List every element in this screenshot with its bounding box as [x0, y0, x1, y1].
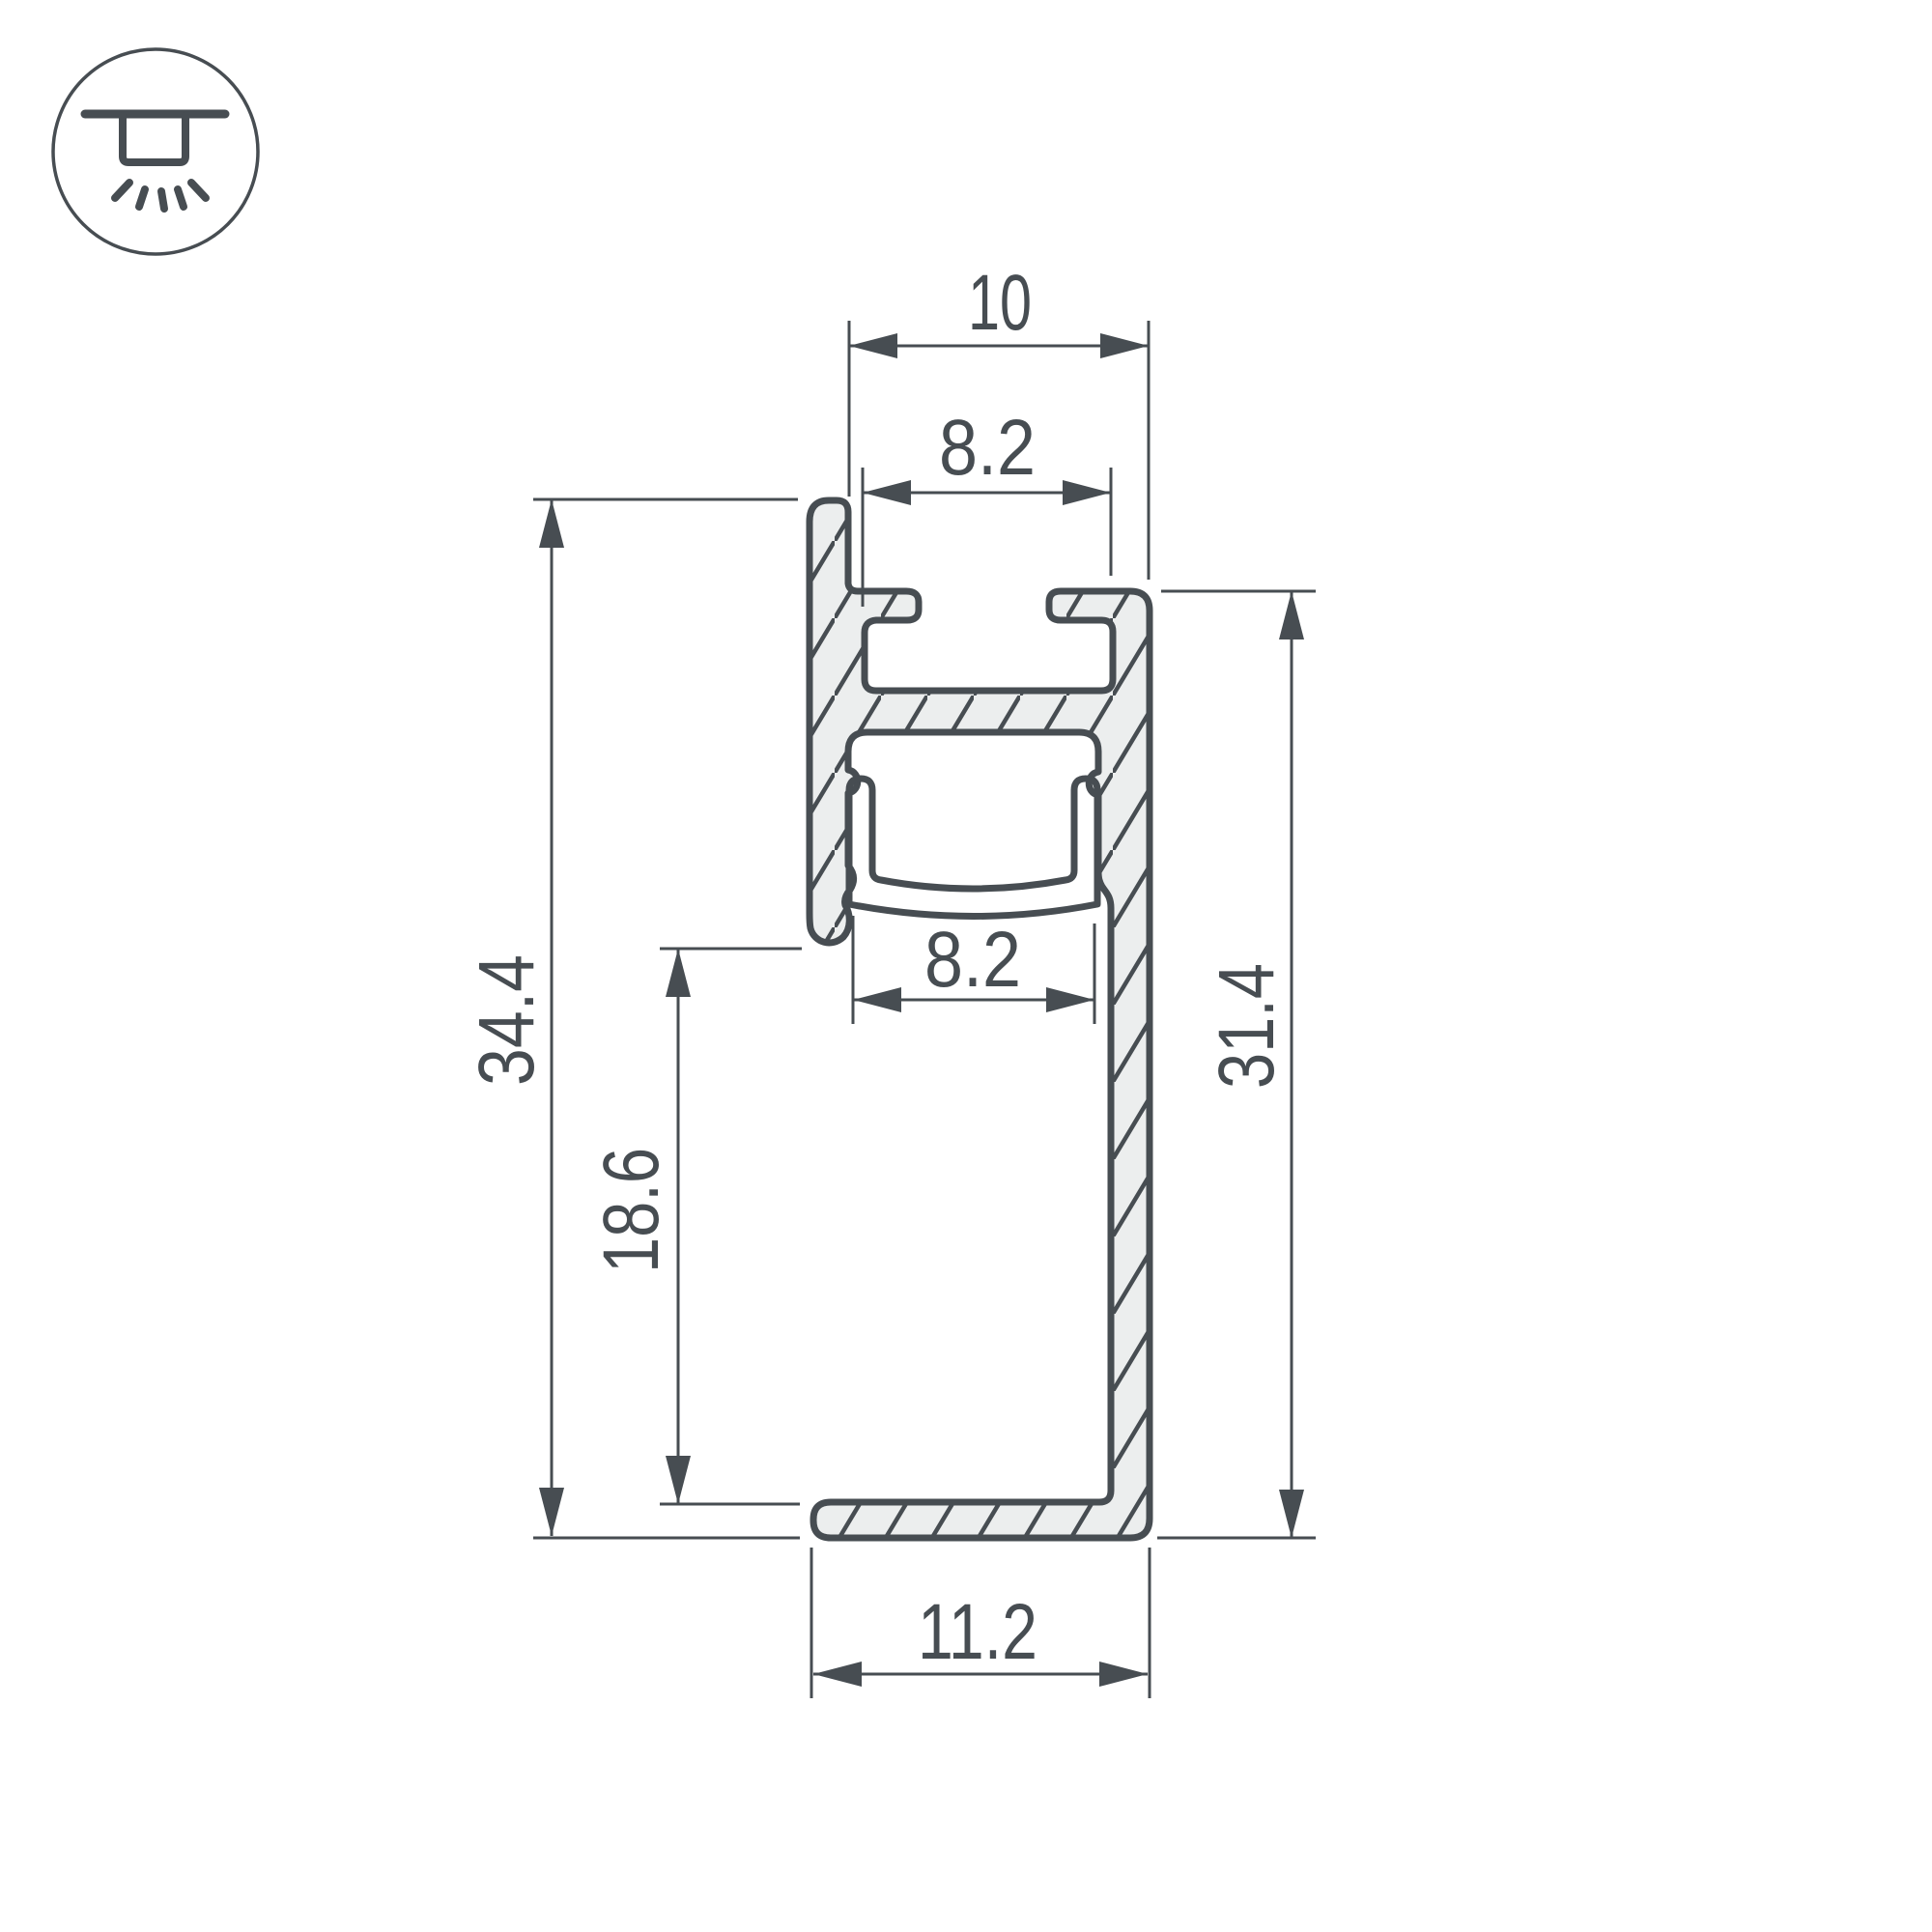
light-ray	[178, 189, 184, 207]
dim-right-height: 31.4	[1157, 591, 1316, 1538]
dim-label: 10	[968, 259, 1032, 347]
profile-technical-drawing: 10 8.2 8.2 34.4 18.6	[0, 0, 1932, 1932]
arrow-up-icon	[539, 499, 564, 548]
arrow-left-icon	[813, 1662, 862, 1687]
arrow-right-icon	[1063, 480, 1111, 505]
arrow-left-icon	[863, 480, 911, 505]
light-ray	[161, 191, 164, 209]
arrow-up-icon	[666, 949, 691, 997]
icon-circle	[53, 49, 258, 254]
arrow-down-icon	[539, 1488, 564, 1536]
dim-label: 11.2	[918, 1588, 1037, 1676]
dim-label: 34.4	[463, 954, 551, 1086]
arrow-left-icon	[853, 987, 901, 1012]
dim-clearance-height: 18.6	[587, 949, 802, 1504]
dim-label: 18.6	[587, 1148, 675, 1273]
drawing-page: 10 8.2 8.2 34.4 18.6	[0, 0, 1932, 1932]
profile-hatching	[810, 500, 1150, 1538]
light-ray	[191, 183, 206, 198]
dim-label: 8.2	[924, 916, 1021, 1004]
arrow-right-icon	[1099, 1662, 1148, 1687]
dim-overall-height: 34.4	[463, 499, 800, 1538]
recessed-downlight-icon	[53, 49, 258, 254]
icon-fixture-box	[123, 116, 185, 162]
dim-label: 31.4	[1203, 963, 1291, 1089]
dim-diffuser-width: 8.2	[853, 916, 1094, 1024]
arrow-down-icon	[1279, 1490, 1304, 1538]
light-ray	[115, 183, 129, 198]
dim-top-slot-width: 8.2	[863, 404, 1111, 607]
arrow-down-icon	[666, 1456, 691, 1504]
arrow-right-icon	[1046, 987, 1094, 1012]
light-ray	[139, 189, 145, 207]
arrow-right-icon	[1100, 333, 1149, 358]
arrow-up-icon	[1279, 591, 1304, 639]
dim-label: 8.2	[939, 404, 1036, 492]
profile-body	[810, 500, 1150, 1538]
arrow-left-icon	[849, 333, 897, 358]
diffuser-lens	[849, 779, 1097, 917]
icon-light-rays	[115, 183, 206, 209]
dim-base-width: 11.2	[811, 1548, 1150, 1698]
